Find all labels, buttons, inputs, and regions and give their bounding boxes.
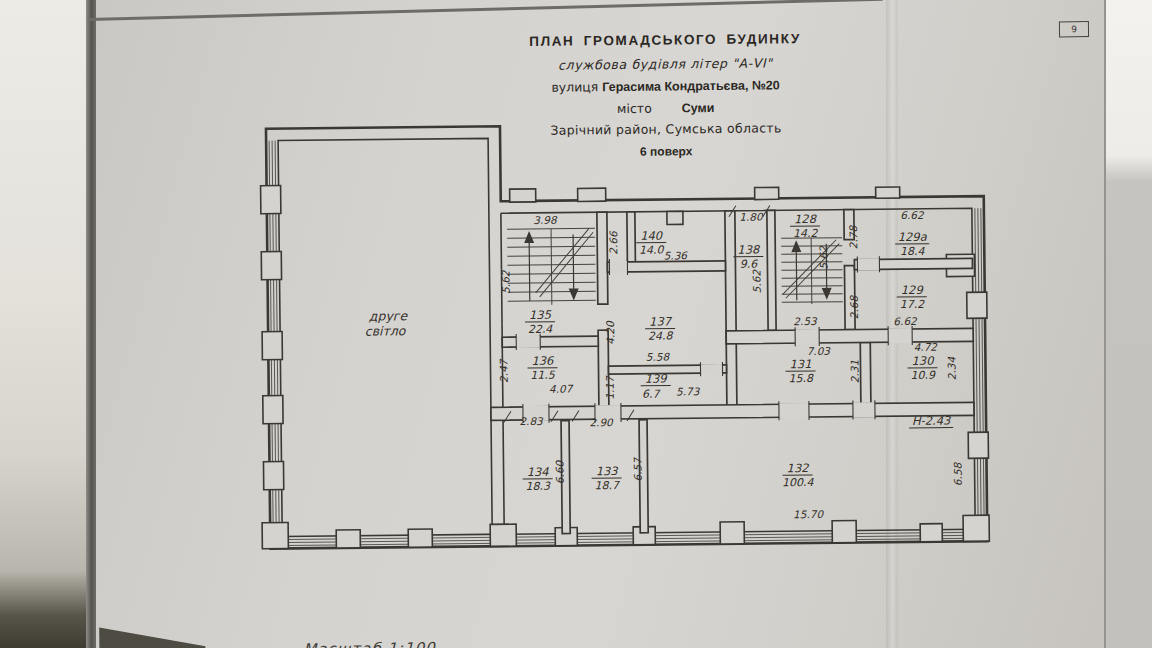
dim-room134-top: 2.83 bbox=[519, 415, 544, 427]
room-label-135: 135 22.4 bbox=[525, 308, 555, 336]
room-label-129a: 129а 18.4 bbox=[895, 230, 929, 258]
room-label-133: 133 18.7 bbox=[592, 464, 622, 492]
svg-text:128: 128 bbox=[794, 212, 818, 226]
dim-room138-top: 1.80 bbox=[739, 210, 764, 222]
dim-stair135-left: 5.62 bbox=[499, 269, 511, 294]
svg-text:17.2: 17.2 bbox=[900, 298, 926, 311]
dim-room133-right: 6.57 bbox=[631, 457, 643, 482]
room-label-139: 139 6.7 bbox=[641, 371, 671, 400]
room-label-140: 140 14.0 bbox=[636, 229, 666, 257]
svg-text:136: 136 bbox=[531, 354, 555, 368]
height-note: Н-2.43 bbox=[909, 414, 953, 428]
dim-stair135-top: 3.98 bbox=[533, 214, 558, 226]
svg-text:137: 137 bbox=[649, 314, 673, 328]
svg-text:129: 129 bbox=[901, 283, 925, 297]
dim-room137-left: 4.20 bbox=[604, 320, 616, 345]
dim-room139-left: 1.17 bbox=[604, 375, 616, 400]
svg-text:10.9: 10.9 bbox=[910, 369, 936, 382]
dim-room138-right: 5.62 bbox=[750, 269, 762, 294]
dim-room129a-top: 6.62 bbox=[900, 209, 925, 221]
svg-text:6.7: 6.7 bbox=[642, 388, 662, 401]
svg-text:24.8: 24.8 bbox=[648, 329, 674, 342]
svg-text:129а: 129а bbox=[898, 230, 928, 244]
room-label-128: 128 14.2 bbox=[790, 212, 820, 240]
svg-text:18.7: 18.7 bbox=[594, 479, 621, 492]
dim-room131-top: 7.03 bbox=[807, 345, 832, 357]
dim-room130-top: 4.72 bbox=[914, 341, 939, 353]
dim-room129a-left: 2.78 bbox=[847, 224, 859, 249]
svg-text:18.4: 18.4 bbox=[900, 245, 926, 258]
dim-room131-right: 2.31 bbox=[848, 360, 860, 384]
svg-text:131: 131 bbox=[789, 357, 811, 371]
staircase-128 bbox=[781, 238, 843, 305]
dim-room130-right: 2.34 bbox=[945, 356, 957, 380]
room-label-129: 129 17.2 bbox=[897, 283, 927, 311]
dim-stair128-right: 5.62 bbox=[817, 245, 829, 270]
open-area-label: друге світло bbox=[365, 308, 409, 338]
dim-room137-width: 5.58 bbox=[646, 350, 671, 362]
room-label-131: 131 15.8 bbox=[785, 357, 815, 385]
room-label-134: 134 18.3 bbox=[523, 465, 553, 493]
dim-stair128-bottom: 2.53 bbox=[793, 315, 818, 327]
floor-plan-drawing: 135 22.4 140 14.0 137 24.8 138 9.6 128 bbox=[0, 0, 1152, 648]
svg-text:132: 132 bbox=[787, 461, 810, 475]
svg-text:138: 138 bbox=[737, 243, 761, 257]
dim-room133-top: 2.90 bbox=[589, 416, 614, 428]
sheet-content: ПЛАН ГРОМАДСЬКОГО БУДИНКУ службова будів… bbox=[0, 0, 1152, 648]
svg-text:140: 140 bbox=[640, 229, 664, 243]
room-label-130: 130 10.9 bbox=[907, 354, 937, 382]
svg-text:світло: світло bbox=[365, 323, 407, 338]
svg-text:134: 134 bbox=[527, 465, 550, 479]
dim-room132-right: 6.58 bbox=[952, 461, 964, 486]
room-label-137: 137 24.8 bbox=[645, 314, 675, 342]
svg-text:друге: друге bbox=[369, 308, 409, 323]
svg-text:130: 130 bbox=[911, 354, 935, 368]
room-label-138: 138 9.6 bbox=[733, 242, 763, 270]
dim-room139-right: 5.73 bbox=[676, 385, 701, 397]
dim-room129-left: 2.68 bbox=[848, 294, 860, 319]
svg-text:9.6: 9.6 bbox=[740, 258, 759, 271]
window-pilasters bbox=[259, 178, 990, 549]
svg-text:15.8: 15.8 bbox=[788, 372, 814, 385]
svg-text:100.4: 100.4 bbox=[782, 476, 815, 489]
dim-room140-width: 5.36 bbox=[664, 249, 689, 261]
room-label-132: 132 100.4 bbox=[782, 461, 815, 489]
svg-text:11.5: 11.5 bbox=[530, 369, 556, 382]
dim-lobby140-left: 2.66 bbox=[607, 230, 619, 255]
dim-room132-bottom: 15.70 bbox=[793, 508, 825, 520]
staircase-135 bbox=[507, 228, 596, 305]
svg-text:139: 139 bbox=[645, 371, 669, 385]
paper-bottom-corner-shadow bbox=[99, 626, 205, 648]
room-label-136: 136 11.5 bbox=[527, 354, 557, 382]
dim-room134-right: 6.60 bbox=[553, 460, 565, 485]
svg-text:Н-2.43: Н-2.43 bbox=[912, 414, 952, 428]
svg-text:14.0: 14.0 bbox=[639, 244, 665, 257]
dim-room129-bottom: 6.62 bbox=[893, 315, 918, 327]
svg-text:133: 133 bbox=[596, 464, 620, 478]
svg-text:22.4: 22.4 bbox=[528, 323, 554, 336]
dim-room136-left: 2.47 bbox=[497, 358, 509, 383]
svg-text:18.3: 18.3 bbox=[525, 480, 551, 493]
dim-room136-bottom: 4.07 bbox=[549, 382, 574, 394]
svg-text:14.2: 14.2 bbox=[793, 227, 819, 240]
svg-text:135: 135 bbox=[529, 308, 552, 322]
